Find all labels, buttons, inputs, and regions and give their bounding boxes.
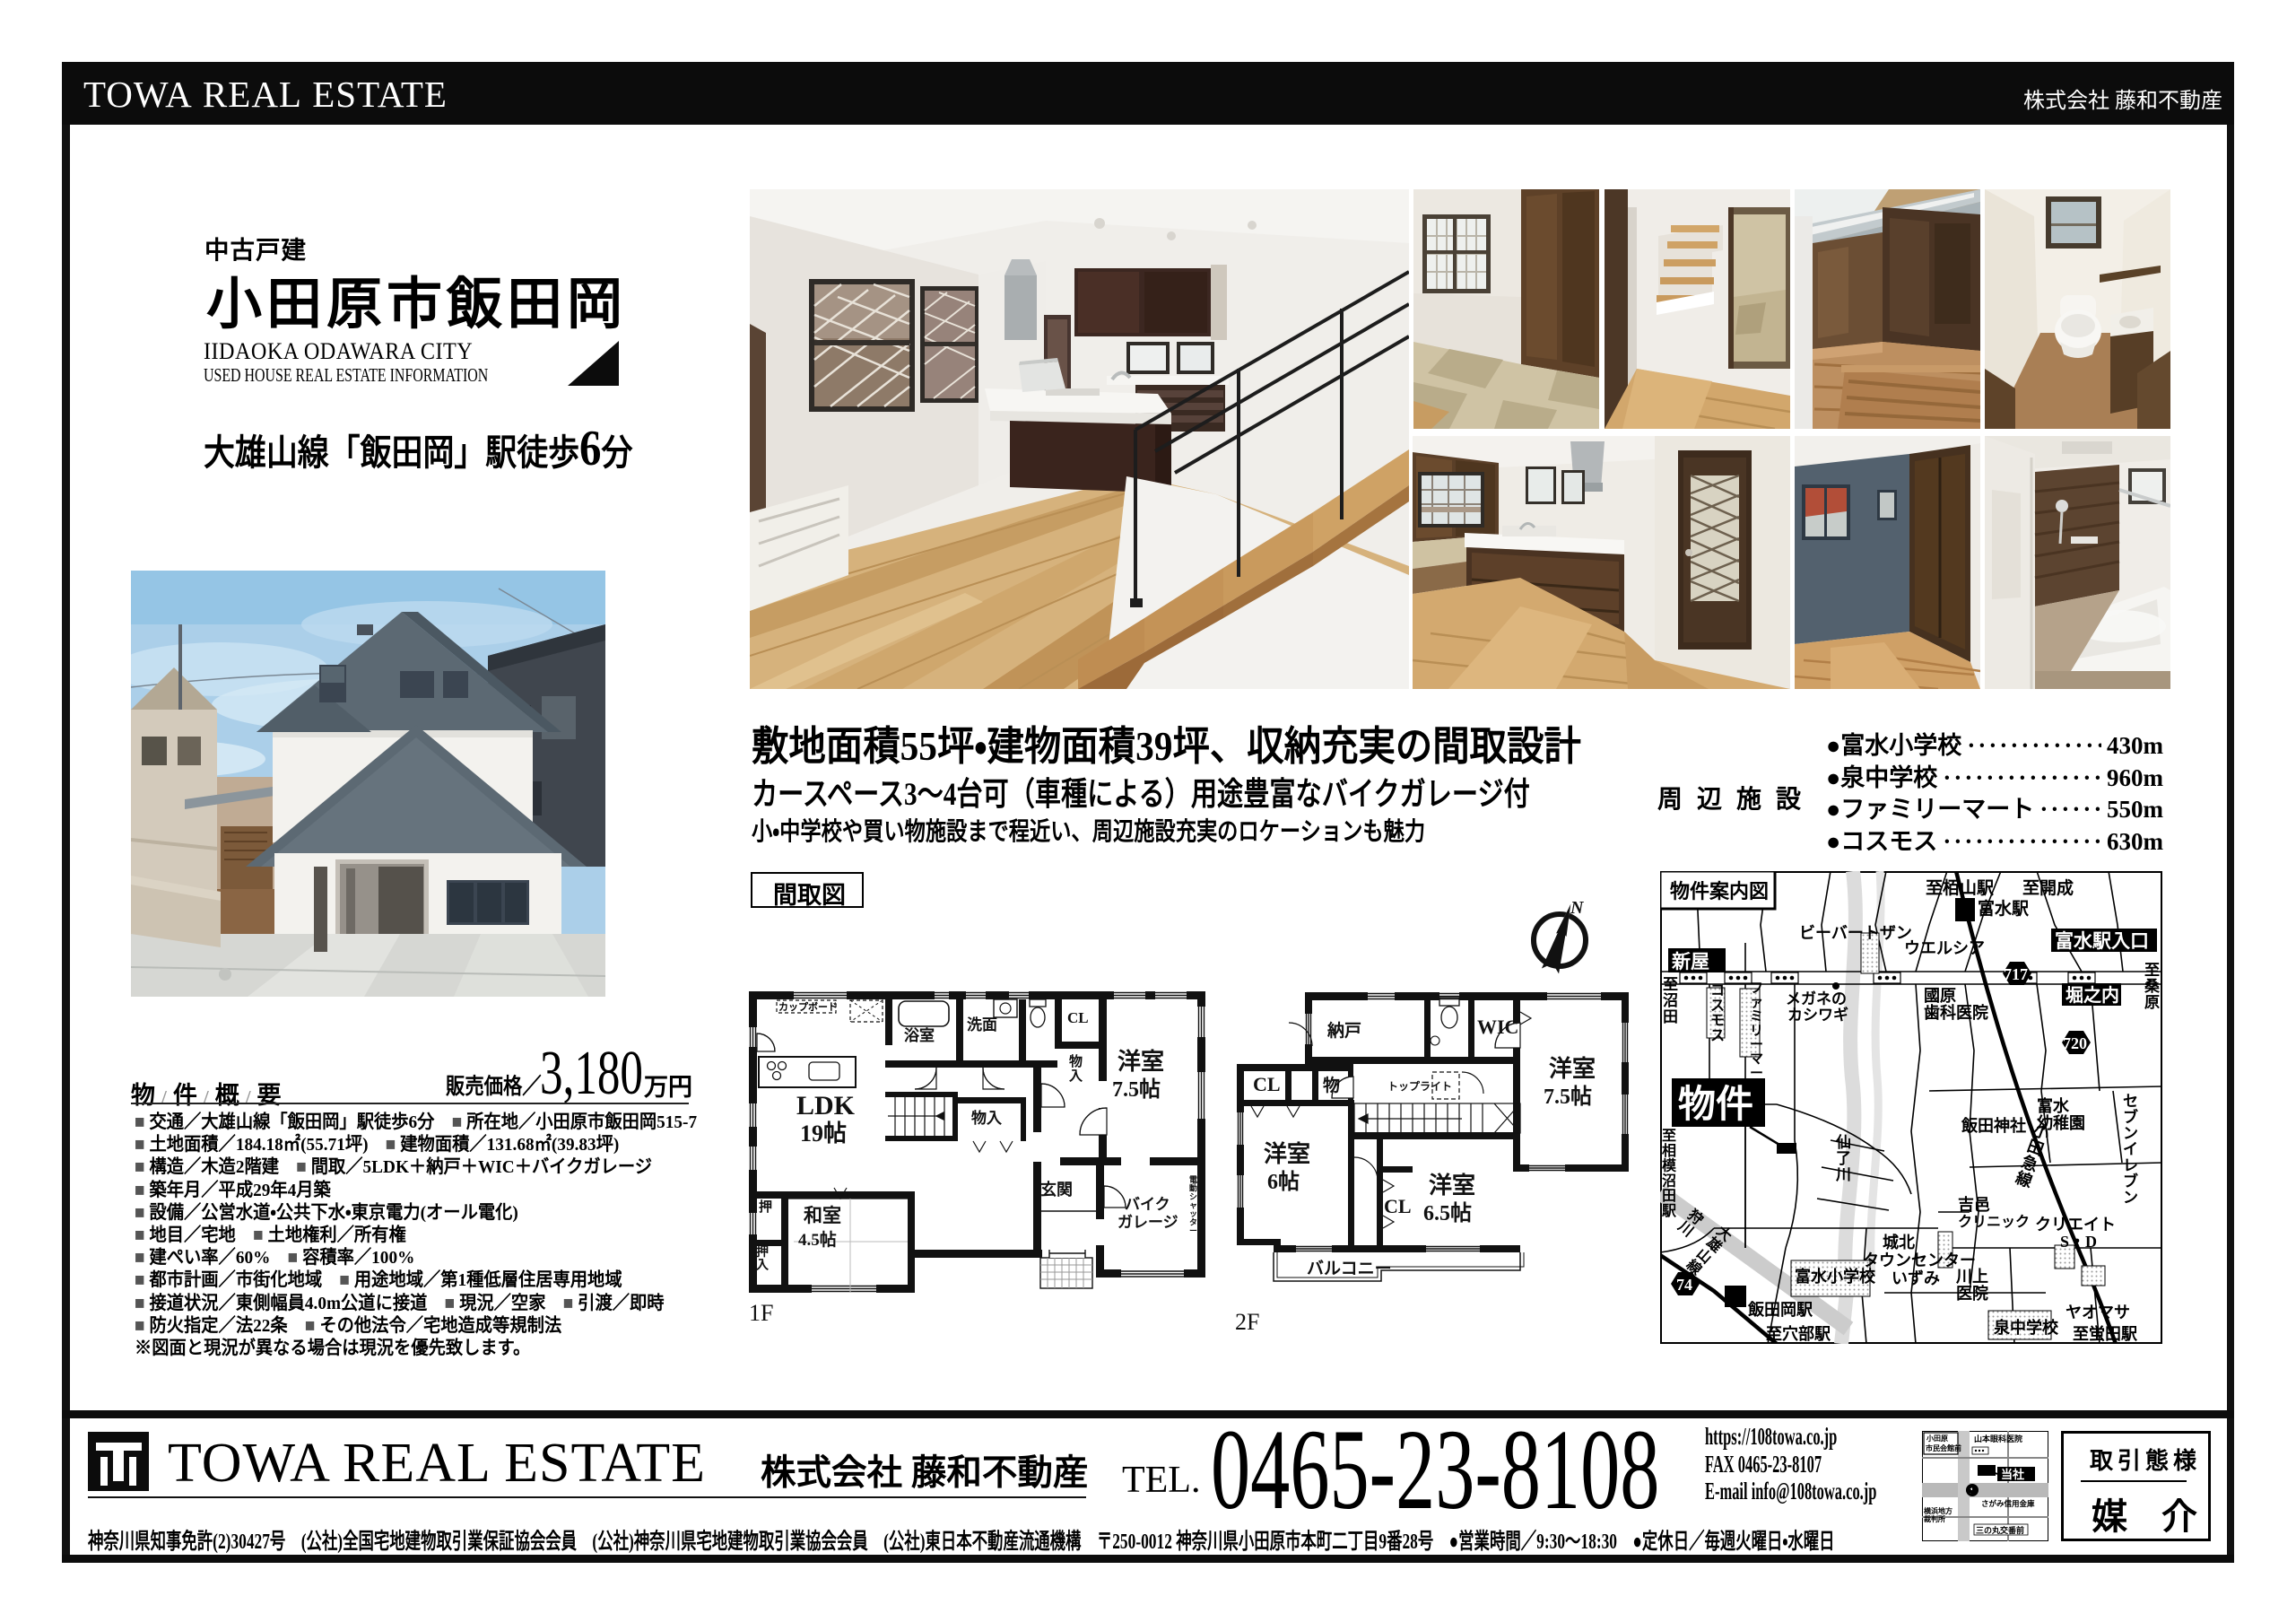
svg-text:國原: 國原 <box>1924 987 1956 1005</box>
svg-text:至穴部駅: 至穴部駅 <box>1766 1324 1831 1343</box>
svg-text:洋室: 洋室 <box>1264 1141 1310 1167</box>
svg-text:堀之内: 堀之内 <box>2066 984 2119 1006</box>
svg-text:城北: 城北 <box>1883 1233 1915 1251</box>
svg-text:コスモス: コスモス <box>1710 983 1725 1043</box>
svg-text:至蛍田駅: 至蛍田駅 <box>2073 1324 2138 1343</box>
svg-text:至沼田: 至沼田 <box>1663 976 1678 1025</box>
svg-text:富水駅入口: 富水駅入口 <box>2055 930 2149 952</box>
svg-text:LDK: LDK <box>796 1091 856 1121</box>
svg-text:ファミリーマート: ファミリーマート <box>1750 981 1763 1095</box>
svg-text:横浜地方: 横浜地方 <box>1924 1506 1952 1515</box>
svg-text:6.5帖: 6.5帖 <box>1423 1201 1472 1225</box>
svg-text:CL: CL <box>1067 1009 1089 1026</box>
svg-text:至相模沼田駅: 至相模沼田駅 <box>1661 1128 1677 1219</box>
svg-text:富水小学校: 富水小学校 <box>1795 1267 1876 1286</box>
svg-text:74: 74 <box>1676 1276 1692 1294</box>
svg-text:飯田神社: 飯田神社 <box>1961 1116 2026 1135</box>
svg-text:新屋: 新屋 <box>1671 951 1709 972</box>
svg-text:N: N <box>1570 898 1585 918</box>
svg-text:小田原: 小田原 <box>1926 1434 1948 1443</box>
svg-text:ガレージ: ガレージ <box>1118 1214 1178 1231</box>
svg-text:物: 物 <box>1323 1075 1340 1095</box>
svg-text:仙了川: 仙了川 <box>1835 1133 1851 1183</box>
svg-text:飯田岡駅: 飯田岡駅 <box>1747 1300 1813 1319</box>
svg-text:川上: 川上 <box>1955 1268 1988 1286</box>
svg-text:カップボード: カップボード <box>778 1000 838 1013</box>
svg-text:納戸: 納戸 <box>1326 1020 1361 1041</box>
svg-text:ヤオマサ: ヤオマサ <box>2066 1304 2130 1321</box>
svg-text:6帖: 6帖 <box>1267 1170 1300 1194</box>
svg-text:720: 720 <box>2063 1034 2087 1052</box>
svg-text:洋室: 洋室 <box>1118 1049 1164 1075</box>
svg-text:ウエルシア: ウエルシア <box>1904 939 1985 957</box>
svg-text:至栢山駅: 至栢山駅 <box>1926 878 1995 898</box>
svg-text:洋室: 洋室 <box>1549 1056 1596 1082</box>
svg-text:和室: 和室 <box>804 1205 841 1226</box>
svg-text:4.5帖: 4.5帖 <box>798 1229 837 1250</box>
svg-text:歯科医院: 歯科医院 <box>1924 1003 1988 1022</box>
svg-text:物件案内図: 物件案内図 <box>1670 880 1769 903</box>
svg-text:押入: 押入 <box>755 1244 769 1273</box>
svg-text:S・D: S・D <box>2060 1233 2097 1251</box>
svg-text:泉中学校: 泉中学校 <box>1994 1318 2059 1337</box>
svg-text:717: 717 <box>2004 965 2028 983</box>
svg-text:カシワギ: カシワギ <box>1787 1007 1848 1024</box>
svg-text:医院: 医院 <box>1956 1285 1988 1303</box>
svg-text:1F: 1F <box>749 1300 773 1326</box>
svg-text:浴室: 浴室 <box>904 1026 935 1044</box>
svg-text:メガネの: メガネの <box>1786 990 1847 1007</box>
svg-text:バルコニー: バルコニー <box>1307 1259 1392 1278</box>
svg-text:さがみ信用金庫: さがみ信用金庫 <box>1981 1499 2035 1508</box>
svg-text:至桑原: 至桑原 <box>2144 962 2161 1011</box>
svg-text:タウンセンター: タウンセンター <box>1863 1251 1976 1269</box>
svg-text:裁判所: 裁判所 <box>1924 1514 1945 1523</box>
svg-text:セブンイレブン: セブンイレブン <box>2123 1093 2138 1206</box>
svg-text:クリエイト: クリエイト <box>2035 1216 2116 1234</box>
svg-text:洗面: 洗面 <box>967 1016 997 1033</box>
svg-text:市民会館前: 市民会館前 <box>1926 1443 1961 1452</box>
svg-text:押: 押 <box>759 1199 772 1215</box>
svg-text:山本眼科医院: 山本眼科医院 <box>1974 1434 2022 1443</box>
svg-text:物入: 物入 <box>971 1109 1002 1127</box>
svg-text:物入: 物入 <box>1068 1053 1083 1084</box>
svg-text:玄関: 玄関 <box>1040 1180 1073 1199</box>
svg-text:ビーバートザン: ビーバートザン <box>1799 924 1912 942</box>
svg-text:電動シャッター: 電動シャッター <box>1189 1175 1197 1235</box>
svg-text:富水駅: 富水駅 <box>1978 899 2030 919</box>
svg-text:至開成: 至開成 <box>2022 877 2074 898</box>
svg-text:CL: CL <box>1384 1195 1412 1217</box>
svg-text:クリニック: クリニック <box>1958 1214 2030 1230</box>
svg-text:19帖: 19帖 <box>800 1121 847 1147</box>
svg-text:富水: 富水 <box>2037 1096 2070 1115</box>
svg-text:いずみ: いずみ <box>1892 1269 1940 1287</box>
svg-text:吉邑: 吉邑 <box>1958 1195 1990 1214</box>
svg-text:当社: 当社 <box>2001 1468 2024 1481</box>
svg-text:バイク: バイク <box>1125 1196 1170 1213</box>
svg-text:7.5帖: 7.5帖 <box>1544 1085 1592 1109</box>
svg-text:CL: CL <box>1253 1073 1281 1095</box>
svg-text:2F: 2F <box>1235 1309 1259 1335</box>
svg-text:物件: 物件 <box>1678 1084 1753 1126</box>
svg-text:WIC: WIC <box>1477 1016 1518 1038</box>
svg-text:トップライト: トップライト <box>1387 1079 1452 1093</box>
svg-text:洋室: 洋室 <box>1429 1173 1475 1199</box>
svg-text:7.5帖: 7.5帖 <box>1112 1077 1161 1102</box>
svg-text:三の丸交番前: 三の丸交番前 <box>1976 1525 2024 1535</box>
